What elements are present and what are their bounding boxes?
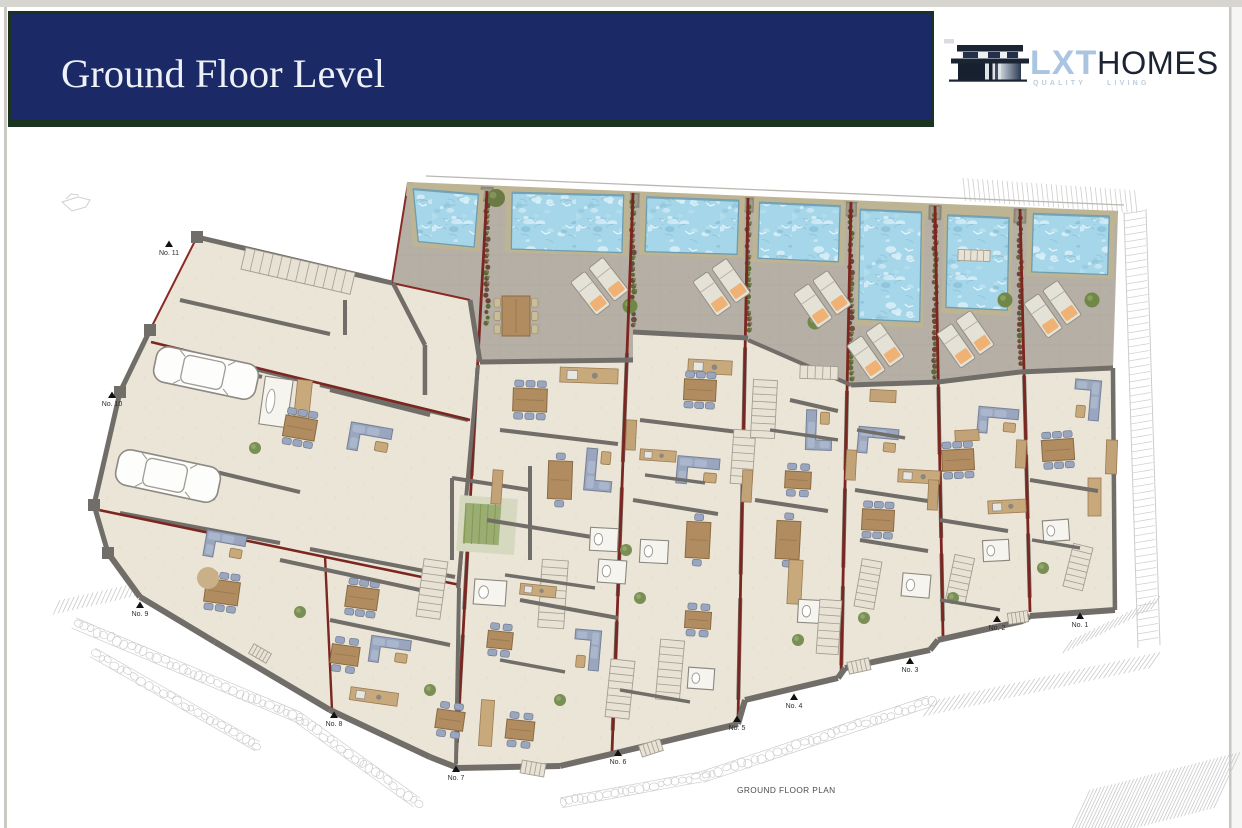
- svg-text:No. 8: No. 8: [326, 721, 343, 728]
- svg-text:No. 7: No. 7: [448, 775, 465, 782]
- svg-text:No. 3: No. 3: [902, 667, 919, 674]
- svg-text:HOMES: HOMES: [1097, 45, 1219, 81]
- svg-text:QUALITY: QUALITY: [1033, 80, 1086, 87]
- svg-text:GROUND FLOOR PLAN: GROUND FLOOR PLAN: [737, 785, 836, 795]
- svg-text:No. 6: No. 6: [610, 759, 627, 766]
- svg-text:No. 5: No. 5: [729, 725, 746, 732]
- svg-text:No. 10: No. 10: [102, 401, 123, 408]
- svg-text:No. 11: No. 11: [159, 250, 179, 257]
- svg-text:No. 4: No. 4: [786, 703, 803, 710]
- svg-text:No. 2: No. 2: [989, 625, 1006, 632]
- svg-text:No. 1: No. 1: [1072, 622, 1089, 629]
- svg-text:LXT: LXT: [1030, 44, 1097, 82]
- svg-text:LIVING: LIVING: [1107, 80, 1150, 87]
- svg-text:Ground Floor Level: Ground Floor Level: [61, 51, 385, 96]
- svg-text:No. 9: No. 9: [132, 611, 149, 618]
